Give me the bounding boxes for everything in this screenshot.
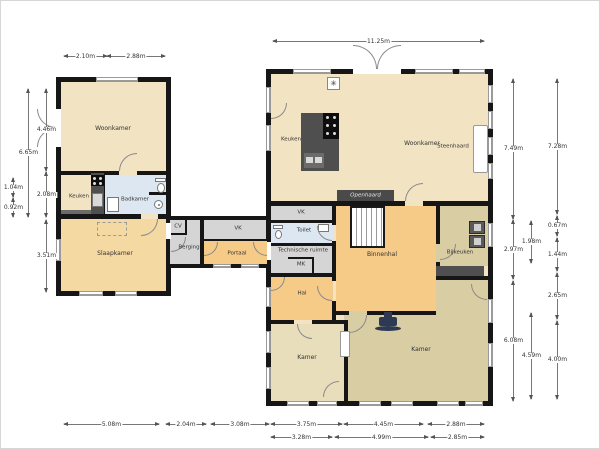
room-label-woonkamer-right: Woonkamer <box>404 141 440 147</box>
dim-arrow <box>202 422 207 426</box>
window <box>115 291 137 296</box>
floor-plan: Openhaard ✳ <box>0 0 600 449</box>
dim-arrow <box>44 171 48 176</box>
dim-arrow <box>11 177 15 182</box>
room-label-keuken-right: Keuken <box>281 137 301 143</box>
dimension: 7.49m <box>513 79 514 219</box>
room-label-bijkeuken: Bijkeuken <box>447 250 474 256</box>
wall-niche <box>340 331 350 357</box>
dim-label: 3.75m <box>296 422 317 428</box>
dim-arrow <box>430 435 435 439</box>
dim-label: 4.99m <box>371 435 392 441</box>
room-label-slaapkamer: Slaapkamer <box>97 251 133 257</box>
dim-arrow <box>529 395 533 400</box>
wall <box>204 239 267 241</box>
stove-icon <box>323 113 339 139</box>
dim-label: 2.97m <box>503 247 524 253</box>
dim-arrow <box>328 435 333 439</box>
window <box>488 111 493 129</box>
dim-arrow <box>555 78 559 83</box>
dim-arrow <box>555 395 559 400</box>
dim-label: 6.08m <box>503 338 524 344</box>
dim-arrow <box>555 237 559 242</box>
dim-label: 1.04m <box>3 185 24 191</box>
door-arc <box>377 45 401 69</box>
window <box>459 69 485 74</box>
washer-icon <box>469 221 485 234</box>
wall <box>271 220 332 223</box>
dimension: 2.88m <box>428 424 484 425</box>
dim-label: 5.08m <box>101 422 122 428</box>
dimension: 7.28m <box>557 79 558 214</box>
dim-label: 4.59m <box>521 353 542 359</box>
dim-label: 2.88m <box>445 422 466 428</box>
room-label-steenhaard: Steenhaard <box>437 144 469 150</box>
dimension: 2.85m <box>431 437 484 438</box>
dim-label: 4.45m <box>373 422 394 428</box>
fireplace <box>473 125 488 173</box>
window <box>488 343 493 367</box>
dim-label: 2.65m <box>547 293 568 299</box>
sink-basin <box>306 157 313 163</box>
dim-arrow <box>424 435 429 439</box>
dim-arrow <box>26 213 30 218</box>
dim-arrow <box>480 422 485 426</box>
dimension: 4.00m <box>557 321 558 399</box>
wall <box>61 214 141 219</box>
dim-arrow <box>529 220 533 225</box>
wall <box>271 243 332 246</box>
burner-dots <box>326 116 329 119</box>
dimension: 1.44m <box>557 238 558 271</box>
dimension: 2.04m <box>166 424 206 425</box>
dim-arrow <box>555 320 559 325</box>
dim-arrow <box>44 219 48 224</box>
dim-label: 7.28m <box>547 144 568 150</box>
window <box>415 69 453 74</box>
dim-label: 2.88m <box>125 54 146 60</box>
dim-arrow <box>529 259 533 264</box>
toilet-tank <box>155 178 166 182</box>
dimension: 1.98m <box>531 221 532 263</box>
room-label-mk: MK <box>297 262 305 268</box>
window <box>391 401 413 406</box>
window <box>465 401 483 406</box>
room-label-portaal: Portaal <box>227 251 246 257</box>
room-label-cv: CV <box>174 224 182 230</box>
sideboard: Openhaard <box>337 190 394 201</box>
dryer-icon <box>469 235 485 248</box>
dimension: 0.92m <box>13 198 14 217</box>
dimension: 5.08m <box>64 424 159 425</box>
stairs <box>350 206 385 248</box>
toilet-icon <box>275 230 282 239</box>
dimension: 4.45m <box>344 424 423 425</box>
wall <box>423 201 488 206</box>
sink-icon <box>92 193 103 207</box>
dim-label: 1.98m <box>521 239 542 245</box>
window <box>488 223 493 247</box>
shower-icon <box>154 200 163 209</box>
wood-stove-icon <box>379 317 397 326</box>
dim-arrow <box>511 78 515 83</box>
room-label-woonkamer-left: Woonkamer <box>95 126 131 132</box>
dim-label: 2.04m <box>175 422 196 428</box>
dim-arrow <box>11 197 15 202</box>
counter <box>436 266 484 276</box>
dim-label: 3.28m <box>291 435 312 441</box>
window <box>317 401 337 406</box>
dimension: 2.10m <box>64 56 107 57</box>
dim-arrow <box>63 422 68 426</box>
dim-arrow <box>161 54 166 58</box>
dim-arrow <box>511 280 515 285</box>
door-opening <box>353 69 401 74</box>
dim-arrow <box>106 54 111 58</box>
dimension: 3.28m <box>271 437 332 438</box>
dimension: 3.08m <box>211 424 269 425</box>
window <box>488 85 493 103</box>
window <box>213 264 231 268</box>
room-label-berging: Berging <box>178 245 199 251</box>
wall <box>266 320 294 324</box>
window <box>79 291 103 296</box>
dim-arrow <box>480 435 485 439</box>
wall <box>312 259 314 273</box>
dimension: 11.25m <box>273 41 484 42</box>
wall <box>137 171 166 175</box>
window <box>488 137 493 155</box>
dim-arrow <box>334 435 339 439</box>
shower-drain <box>158 204 160 206</box>
toilet-icon <box>157 183 165 193</box>
window <box>287 401 309 406</box>
dim-label: 6.65m <box>18 150 39 156</box>
dim-arrow <box>270 435 275 439</box>
wardrobe-outline <box>97 222 127 236</box>
room-label-vk-right: VK <box>297 210 304 216</box>
room-label-keuken-left: Keuken <box>69 194 89 200</box>
dim-arrow <box>555 215 559 220</box>
dimension: 3.75m <box>271 424 342 425</box>
dim-arrow <box>480 39 485 43</box>
dim-arrow <box>165 422 170 426</box>
room-label-technische-ruimte: Technische ruimte <box>278 248 328 254</box>
wall <box>367 311 436 315</box>
wall <box>332 311 349 315</box>
dimension: 3.51m <box>46 220 47 292</box>
wall <box>288 257 314 259</box>
window <box>241 264 259 268</box>
dimension: 2.97m <box>513 220 514 279</box>
dim-label: 2.08m <box>36 192 57 198</box>
wood-stove-base <box>375 326 401 331</box>
window <box>96 77 138 82</box>
room-label-kamer-small: Kamer <box>297 355 317 361</box>
dimension: 2.65m <box>557 273 558 319</box>
dimension: 2.08m <box>46 172 47 217</box>
dim-arrow <box>63 54 68 58</box>
dim-arrow <box>11 213 15 218</box>
wall <box>170 233 187 235</box>
dim-arrow <box>419 422 424 426</box>
door-opening <box>267 242 271 260</box>
dimension: 0.67m <box>557 216 558 236</box>
dimension: 6.65m <box>28 89 29 217</box>
dim-label: 7.49m <box>503 146 524 152</box>
dim-arrow <box>343 422 348 426</box>
dim-label: 0.92m <box>3 205 24 211</box>
dim-arrow <box>427 422 432 426</box>
dim-arrow <box>44 88 48 93</box>
dimension: 4.59m <box>531 313 532 399</box>
dim-label: 3.51m <box>36 253 57 259</box>
washer-door <box>474 224 481 231</box>
dim-label: 4.46m <box>36 127 57 133</box>
window <box>488 163 493 179</box>
window <box>266 125 271 151</box>
dim-label: 4.00m <box>547 357 568 363</box>
dim-arrow <box>44 213 48 218</box>
sink-icon <box>304 153 324 168</box>
window <box>488 299 493 323</box>
dim-arrow <box>44 288 48 293</box>
dimension: 1.04m <box>13 178 14 197</box>
window <box>266 331 271 353</box>
dim-arrow <box>272 39 277 43</box>
vent-icon: ✳ <box>327 77 340 90</box>
wall <box>332 206 336 225</box>
window <box>266 367 271 389</box>
sink-basin <box>315 157 322 163</box>
room-label-hal: Hal <box>297 291 306 297</box>
wall <box>158 214 166 219</box>
dim-label: 2.10m <box>75 54 96 60</box>
window <box>437 401 459 406</box>
room-label-vk-left: VK <box>234 226 241 232</box>
dim-label: 1.44m <box>547 252 568 258</box>
dimension: 4.46m <box>46 89 47 171</box>
dim-arrow <box>555 272 559 277</box>
dim-arrow <box>270 422 275 426</box>
window <box>293 69 331 74</box>
room-label-toilet: Toilet <box>297 228 311 234</box>
dim-arrow <box>511 219 515 224</box>
dim-arrow <box>210 422 215 426</box>
room-label-kamer-large: Kamer <box>411 347 431 353</box>
dim-arrow <box>511 397 515 402</box>
wall <box>61 171 119 175</box>
stove-icon <box>91 175 104 186</box>
dim-label: 3.08m <box>229 422 250 428</box>
dimension: 6.08m <box>513 281 514 401</box>
dim-label: 2.85m <box>447 435 468 441</box>
wall <box>149 192 166 195</box>
dimension: 4.99m <box>335 437 428 438</box>
door-arc <box>353 45 377 69</box>
dim-label: 0.67m <box>547 223 568 229</box>
washbasin-icon <box>107 197 119 212</box>
dryer-door <box>474 238 481 245</box>
window <box>359 401 381 406</box>
sideboard-label: Openhaard <box>350 193 381 199</box>
wall <box>436 276 488 280</box>
wall <box>436 201 440 244</box>
burner-dots <box>93 177 96 180</box>
room-label-badkamer: Badkamer <box>121 197 149 203</box>
toilet-tank <box>273 225 283 229</box>
wall <box>312 320 348 324</box>
dim-arrow <box>529 312 533 317</box>
dimension: 2.88m <box>107 56 165 57</box>
room-label-binnenhal: Binnenhal <box>367 252 397 258</box>
dim-arrow <box>26 88 30 93</box>
dim-label: 11.25m <box>366 39 391 45</box>
dim-arrow <box>155 422 160 426</box>
